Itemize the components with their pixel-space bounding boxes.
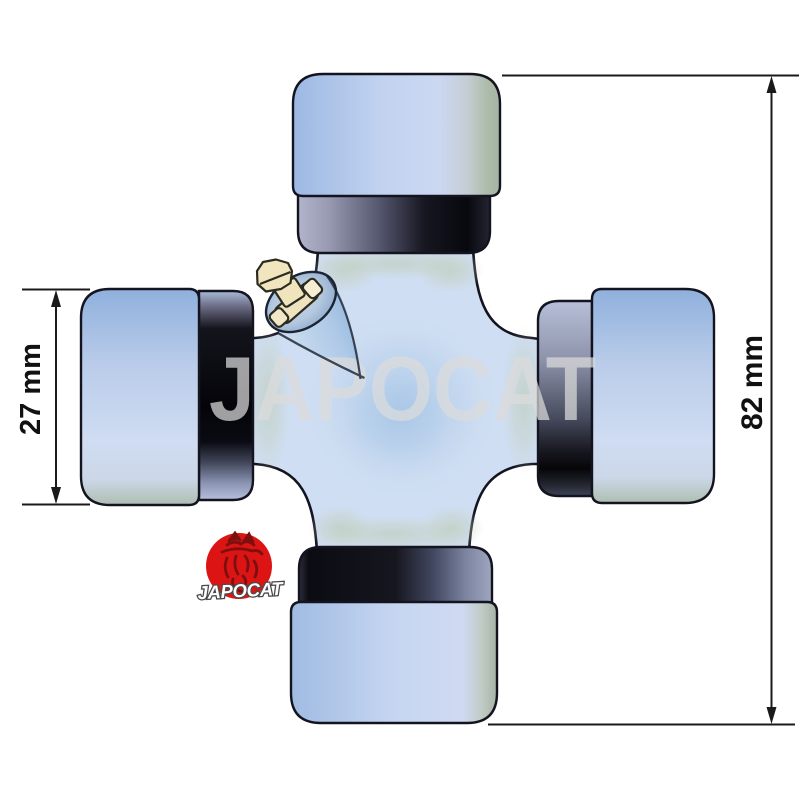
svg-text:JAPOCAT: JAPOCAT (197, 578, 285, 604)
svg-text:82 mm: 82 mm (736, 335, 769, 430)
svg-text:JAPOCAT: JAPOCAT (209, 339, 596, 440)
svg-text:27 mm: 27 mm (15, 343, 47, 435)
